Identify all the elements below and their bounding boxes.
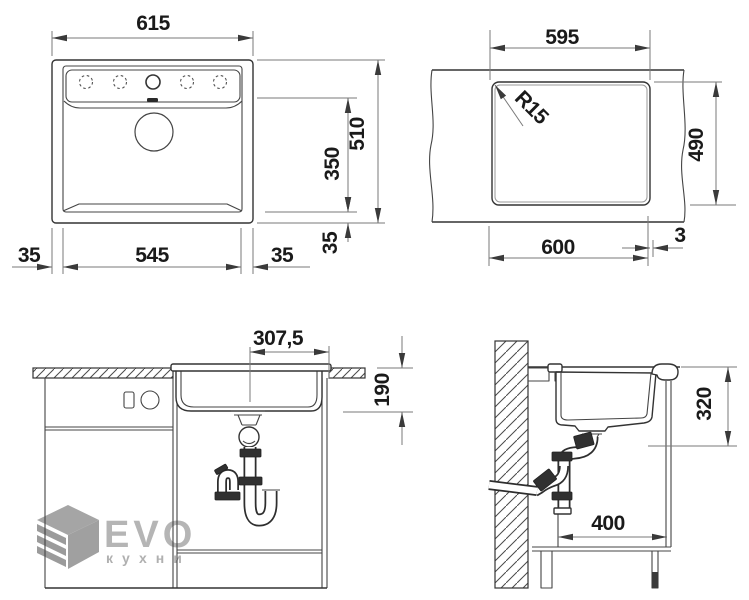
dimension-cutout-depth: 490 [654, 82, 736, 205]
faucet-hole-optional [214, 76, 227, 89]
dim-cutout-depth-value: 490 [685, 128, 708, 162]
dim-margin-right-value: 35 [271, 244, 294, 267]
faucet-hole-main [146, 75, 160, 89]
dim-bowl-depth-value: 350 [321, 147, 344, 181]
plinth-foot [652, 572, 658, 588]
overflow-notch [147, 98, 158, 102]
countertop-break-left [430, 70, 434, 222]
dim-depth-clearance-value: 400 [591, 512, 625, 535]
trap-nut [552, 492, 572, 500]
trap-nut [240, 449, 261, 457]
evo-cube-logo-icon [37, 505, 99, 569]
sink-back-rim [548, 364, 562, 372]
plinth-back-leg [541, 551, 552, 588]
dimension-overall-width: 615 [52, 12, 253, 56]
faucet-hole-optional [181, 76, 194, 89]
sink-outer-edge [52, 60, 253, 223]
drain-trap-front [214, 411, 280, 520]
dimension-bowl-height: 190 [343, 336, 413, 445]
trap-nut [552, 452, 572, 461]
dimension-bottom-row: 35 545 35 [12, 228, 310, 274]
drain-hole [135, 113, 173, 151]
dim-center-to-edge-value: 307,5 [253, 327, 304, 350]
faucet-holes [80, 76, 227, 89]
faucet-hole-optional [114, 76, 127, 89]
faucet-hole-optional [80, 76, 93, 89]
dim-corner-radius-value: R15 [510, 86, 553, 129]
sink-installation-drawing: EVO кухни 615 510 [0, 0, 749, 600]
watermark: EVO кухни [37, 505, 196, 569]
sink-bowl-front [171, 364, 331, 411]
drain-flange [231, 411, 265, 425]
wall-section [495, 341, 528, 588]
dim-edge-gap-value: 3 [674, 224, 685, 247]
dim-bowl-width-value: 545 [135, 244, 169, 267]
view-countertop-cutout: R15 595 490 600 3 [430, 26, 736, 266]
dimension-right-side: 510 350 35 [257, 60, 385, 254]
dimension-corner-radius: R15 [495, 85, 553, 129]
watermark-subtitle: кухни [106, 550, 191, 566]
dishwasher-symbol-rect [124, 392, 134, 408]
dim-cutout-width-value: 595 [545, 26, 579, 49]
view-sink-top: 615 510 350 35 35 545 35 [12, 12, 385, 274]
dishwasher-symbol-circle [141, 391, 159, 409]
dimension-depth-clearance: 400 [558, 512, 667, 537]
sink-bowl-side [556, 364, 678, 431]
sink-rim [171, 364, 331, 371]
dim-margin-left-value: 35 [18, 244, 41, 267]
hook-nut [215, 492, 240, 500]
drawing-canvas: EVO кухни 615 510 [0, 0, 749, 600]
dimension-base-width: 600 3 [489, 216, 686, 266]
dim-bowl-height-value: 190 [371, 373, 394, 407]
pipe-end-cap [554, 508, 571, 514]
trap-nut [239, 477, 262, 485]
bowl-bottom-chamfer [63, 204, 242, 211]
dim-overall-width-value: 615 [136, 12, 170, 35]
view-cabinet-side: 320 400 [489, 341, 737, 588]
dim-base-width-value: 600 [541, 236, 575, 259]
dim-min-clearance-value: 320 [693, 387, 716, 421]
dim-edge-offset-value: 35 [319, 231, 342, 254]
dimension-cutout-width: 595 [490, 26, 650, 80]
dim-overall-depth-value: 510 [346, 117, 369, 151]
